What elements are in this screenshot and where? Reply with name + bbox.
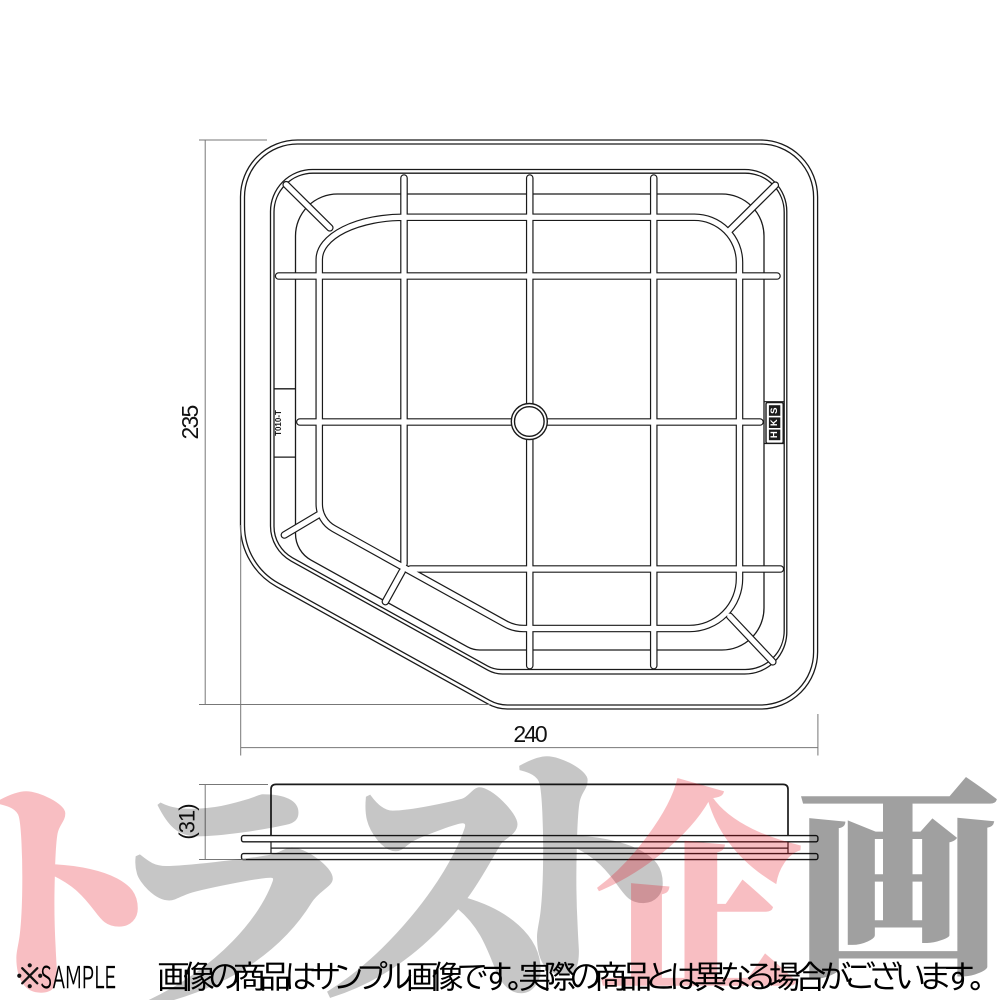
svg-text:235: 235 [177, 406, 203, 440]
svg-text:T010-T: T010-T [274, 410, 283, 436]
svg-text:K: K [769, 419, 780, 426]
svg-text:S: S [769, 408, 780, 414]
svg-text:H: H [769, 431, 780, 438]
svg-text:240: 240 [513, 721, 547, 747]
